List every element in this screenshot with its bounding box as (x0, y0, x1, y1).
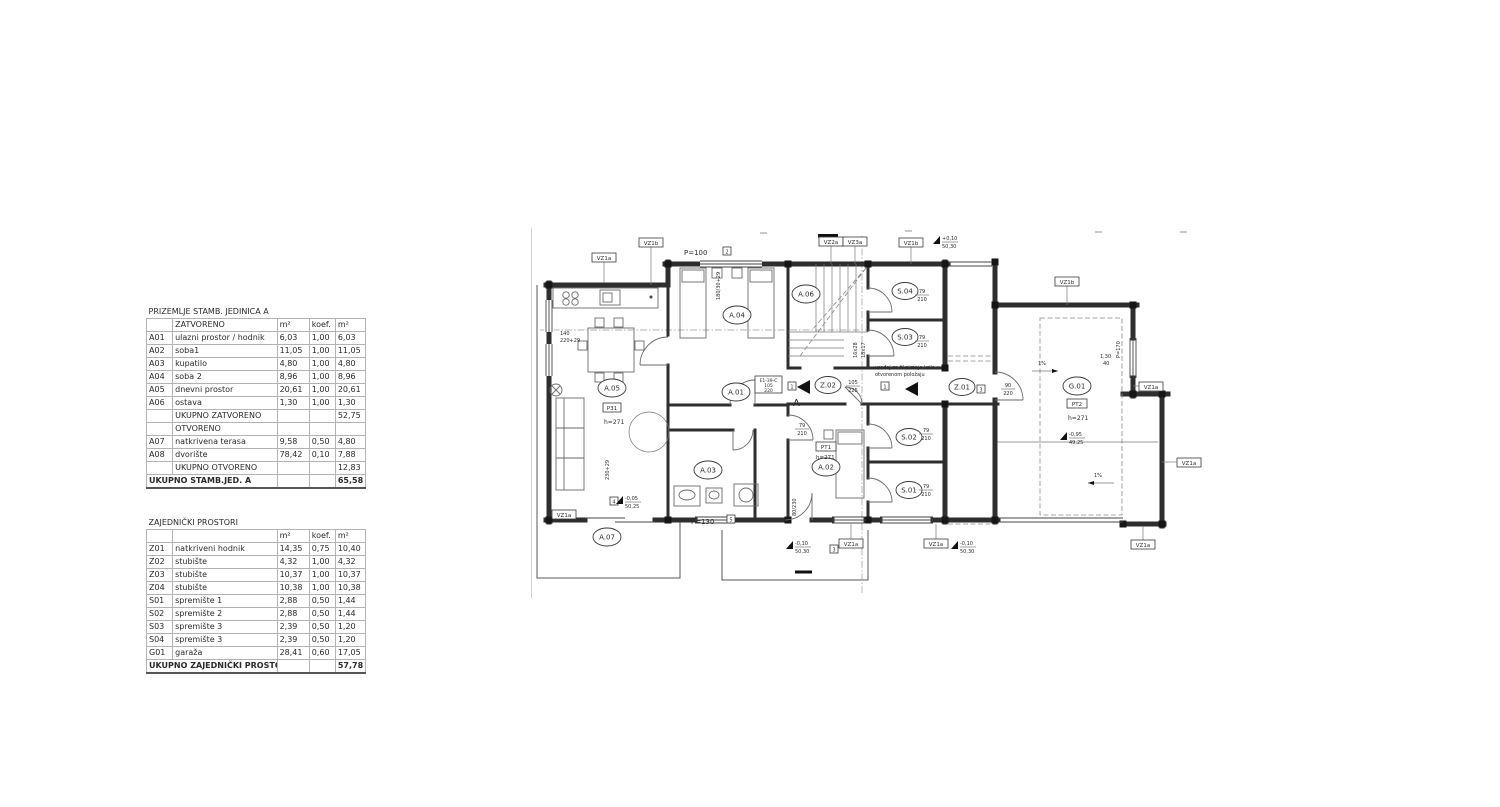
room-label-a02: A.02 (818, 464, 834, 472)
svg-text:79: 79 (799, 423, 805, 429)
elevation-top: +0,1050,30 (933, 236, 958, 250)
row-z01: Z01natkriveni hodnik14,350,7510,40 (147, 543, 366, 556)
svg-text:79: 79 (919, 289, 925, 295)
room-label-a07: A.07 (599, 534, 615, 542)
opening-number: 3 (979, 388, 982, 394)
svg-text:-0,05: -0,05 (625, 496, 638, 502)
room-label-z02: Z.02 (820, 382, 836, 390)
row-g01: G01garaža28,410,6017,05 (147, 647, 366, 660)
svg-text:1,30: 1,30 (1100, 354, 1111, 360)
window-dim: 140 (560, 331, 570, 337)
opening-number: 2 (725, 250, 728, 256)
tag-pt1: PT1 (821, 445, 831, 451)
svg-text:210: 210 (921, 436, 931, 442)
slope-label: 1% (1038, 361, 1046, 367)
svg-text:50,30: 50,30 (795, 549, 809, 555)
tag-vz1a: VZ1a (597, 256, 611, 262)
tag-pt2: PT2 (1072, 402, 1082, 408)
table-unit-a-areas: PRIZEMLJE STAMB. JEDINICA A ZATVORENOm²k… (146, 306, 366, 489)
room-label-a05: A.05 (604, 385, 620, 393)
table1-title: PRIZEMLJE STAMB. JEDINICA A (147, 306, 278, 319)
row-a05: A05dnevni prostor20,611,0020,61 (147, 384, 366, 397)
ceiling-height: h=271 (1068, 415, 1088, 422)
row-s02: S02spremište 22,880,501,44 (147, 608, 366, 621)
window-dim: 220+29 (560, 338, 580, 344)
opening-number: 4 (612, 500, 615, 506)
svg-text:49,25: 49,25 (1069, 440, 1083, 446)
door-dim: 80/230 (792, 498, 798, 516)
room-label-a01: A.01 (728, 389, 744, 397)
room-label-s02: S.02 (901, 434, 917, 442)
note-line2: otvorenom položaju (875, 371, 925, 378)
table2-title-row: ZAJEDNIČKI PROSTORI (147, 517, 366, 530)
room-label-s01: S.01 (901, 487, 917, 495)
window-dim: 230+29 (605, 460, 611, 480)
room-label-z01: Z.01 (954, 384, 970, 392)
room-label-a04: A.04 (729, 312, 745, 320)
scanned-floor-plan-page: PRIZEMLJE STAMB. JEDINICA A ZATVORENOm²k… (0, 0, 1500, 807)
svg-text:105: 105 (848, 380, 858, 386)
row-a06: A06ostava1,301,001,30 (147, 397, 366, 410)
tag-vz1a: VZ1a (1144, 385, 1158, 391)
opening-number: 5 (729, 518, 732, 524)
section-arrow-icon (797, 380, 810, 394)
svg-text:50,30: 50,30 (960, 549, 974, 555)
row-section-open: OTVORENO (147, 423, 366, 436)
row-s03: S03spremište 32,390,501,20 (147, 621, 366, 634)
floor-plan-drawing: A.05 A.04 A.06 A.01 A.03 A.02 A.07 Z.02 … (525, 222, 1265, 614)
tag-vz1b: VZ1b (904, 241, 919, 247)
elevation-terrace: -0,0550,25 (616, 496, 641, 510)
opening-number: 3 (832, 548, 835, 554)
row-subtotal-closed: UKUPNO ZATVORENO52,75 (147, 410, 366, 423)
room-label-a03: A.03 (700, 467, 716, 475)
svg-text:220: 220 (1003, 391, 1013, 397)
svg-text:225: 225 (848, 388, 858, 394)
room-label-a06: A.06 (798, 291, 814, 299)
row-subtotal-open: UKUPNO OTVORENO12,83 (147, 462, 366, 475)
parapet-dim: P=170 (1116, 341, 1122, 358)
row-total-unit-a: UKUPNO STAMB.JED. A65,58 (147, 475, 366, 489)
table1-header-row: ZATVORENOm²koef.m² (147, 319, 366, 332)
row-total-common: UKUPNO ZAJEDNIČKI PROSTORI57,78 (147, 660, 366, 674)
section-arrow-icon (905, 382, 918, 396)
table1-title-row: PRIZEMLJE STAMB. JEDINICA A (147, 306, 366, 319)
tag-vz1b: VZ1b (1060, 280, 1075, 286)
svg-text:+0,10: +0,10 (942, 236, 957, 242)
tag-vz1a: VZ1a (929, 542, 943, 548)
yard-outlines (537, 285, 1158, 580)
ceiling-height: h=271 (604, 419, 624, 426)
svg-text:50,25: 50,25 (625, 504, 639, 510)
row-a04: A04soba 28,961,008,96 (147, 371, 366, 384)
section-letter: A (793, 398, 800, 409)
svg-text:210: 210 (917, 343, 927, 349)
row-a07: A07natkrivena terasa9,580,504,80 (147, 436, 366, 449)
row-s01: S01spremište 12,880,501,44 (147, 595, 366, 608)
room-label-s03: S.03 (897, 334, 913, 342)
svg-text:-0,95: -0,95 (1069, 432, 1082, 438)
row-a02: A02soba111,051,0011,05 (147, 345, 366, 358)
svg-text:79: 79 (919, 335, 925, 341)
plan-texts: P=100 P=130 h=271 h=271 h=271 A uređaj z… (560, 249, 1122, 526)
tag-e1-line3: 220 (764, 388, 773, 394)
row-a03: A03kupatilo4,801,004,80 (147, 358, 366, 371)
svg-text:79: 79 (923, 428, 929, 434)
row-a08: A08dvorište78,420,107,88 (147, 449, 366, 462)
staircase (788, 264, 868, 356)
tag-vz1a: VZ1a (1182, 461, 1196, 467)
tag-vz1a: VZ1a (844, 542, 858, 548)
row-a01: A01ulazni prostor / hodnik6,031,006,03 (147, 332, 366, 345)
table-common-areas: ZAJEDNIČKI PROSTORI m²koef.m² Z01natkriv… (146, 517, 366, 674)
svg-text:-0,10: -0,10 (960, 541, 973, 547)
table2-title: ZAJEDNIČKI PROSTORI (147, 517, 278, 530)
floor-height-p100: P=100 (684, 249, 707, 257)
row-z02: Z02stubište4,321,004,32 (147, 556, 366, 569)
stair-dim: 16x28 (853, 342, 859, 358)
opening-number: 1 (883, 385, 886, 391)
tag-vz1a: VZ1a (557, 513, 571, 519)
svg-text:50,30: 50,30 (942, 244, 956, 250)
row-z03: Z03stubište10,371,0010,37 (147, 569, 366, 582)
elevation-garage: -0,9549,25 (1060, 432, 1085, 446)
tag-p31: P31 (607, 406, 617, 412)
svg-text:-0,10: -0,10 (795, 541, 808, 547)
elevation-markers: +0,1050,30 -0,1050,30 -0,1050,30 -0,0550… (616, 236, 1085, 555)
elevation-bottom-left: -0,1050,30 (786, 541, 811, 555)
room-label-g01: G.01 (1069, 383, 1086, 391)
stair-dim: 18x17 (861, 342, 867, 358)
note-line1: uređaj za fiksiranje krila u (875, 365, 940, 371)
table2-header-row: m²koef.m² (147, 530, 366, 543)
opening-number: 1 (790, 385, 793, 391)
floor-height-p130: P=130 (691, 518, 714, 526)
tag-vz1b: VZ1b (644, 241, 659, 247)
svg-text:210: 210 (917, 297, 927, 303)
svg-text:210: 210 (797, 431, 807, 437)
row-s04: S04spremište 32,390,501,20 (147, 634, 366, 647)
elevation-bottom-right: -0,1050,30 (951, 541, 976, 555)
svg-text:79: 79 (923, 484, 929, 490)
ceiling-height: h=271 (816, 455, 835, 461)
tag-vz2a: VZ2a (824, 240, 838, 246)
svg-text:210: 210 (921, 492, 931, 498)
svg-text:40: 40 (1103, 361, 1109, 367)
row-z04: Z04stubište10,381,0010,38 (147, 582, 366, 595)
tag-vz1a: VZ1a (1136, 543, 1150, 549)
tag-vz3a: VZ3a (848, 240, 862, 246)
window-dim: 180/30+29 (716, 272, 722, 300)
room-label-s04: S.04 (897, 288, 913, 296)
slope-label: 1% (1094, 473, 1102, 479)
svg-text:90: 90 (1005, 383, 1011, 389)
